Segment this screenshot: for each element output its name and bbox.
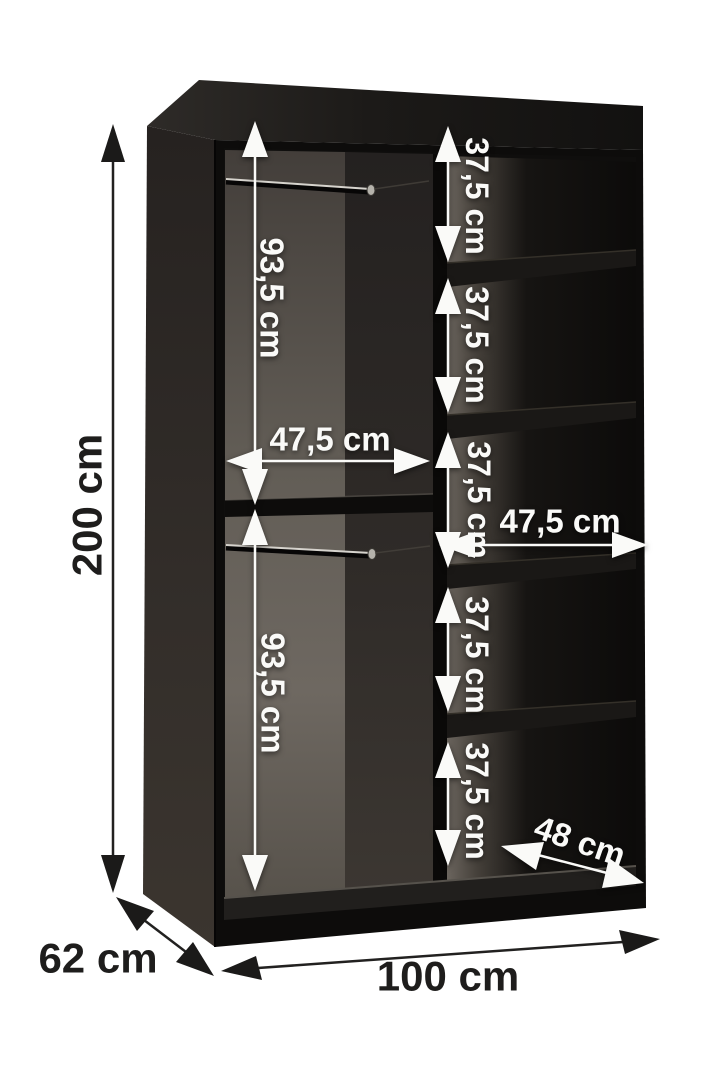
cabinet-top-face [147,80,643,150]
shelf-gap-label: 37,5 cm [459,286,495,403]
shelf-gap-label: 37,5 cm [459,742,495,859]
depth-label: 62 cm [38,935,157,982]
diagram-canvas: 93,5 cm 93,5 cm 47,5 cm 47,5 cm [0,0,727,1080]
right-width-label: 47,5 cm [499,503,620,540]
shelf-gap-label: 37,5 cm [459,137,495,254]
left-lower-height-label: 93,5 cm [255,632,292,753]
arrowhead-up-left [116,897,154,931]
width-label: 100 cm [377,953,519,1000]
arrowhead-right [619,930,660,954]
rail-end-cap [368,549,376,560]
left-width-label: 47,5 cm [269,421,390,458]
arrowhead-up [101,124,125,162]
arrowhead-down-right [176,942,214,976]
center-divider-panel [433,154,447,898]
wardrobe-dimension-diagram: 93,5 cm 93,5 cm 47,5 cm 47,5 cm [0,0,727,1080]
cabinet-side-panel [143,126,215,947]
rail-end-cap [367,185,375,196]
shelf-gap-label: 37,5 cm [459,596,495,713]
arrowhead-down [101,855,125,893]
left-compartment-shadow [345,152,433,899]
height-label: 200 cm [64,434,111,576]
dim-height: 200 cm [64,124,126,893]
left-upper-height-label: 93,5 cm [254,237,291,358]
shelf-gap-label: 37,5 cm [461,441,497,558]
arrowhead-left [221,956,262,980]
